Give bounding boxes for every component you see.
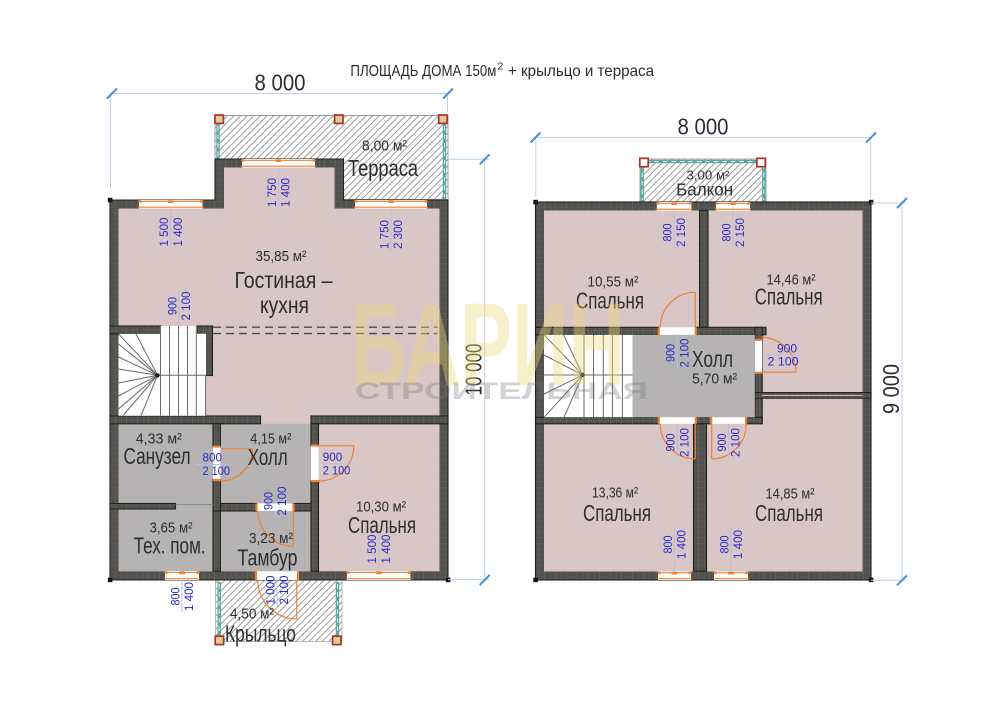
- svg-text:1 500: 1 500: [367, 535, 379, 564]
- svg-text:800: 800: [721, 224, 733, 242]
- svg-text:800: 800: [719, 536, 731, 554]
- svg-text:Балкон: Балкон: [676, 180, 733, 200]
- svg-text:900: 900: [167, 297, 179, 315]
- svg-text:8,00 м²: 8,00 м²: [362, 138, 407, 155]
- svg-text:800: 800: [663, 536, 675, 554]
- svg-text:кухня: кухня: [260, 292, 309, 318]
- svg-text:Спальня: Спальня: [348, 512, 416, 538]
- svg-text:900: 900: [717, 434, 729, 452]
- svg-text:2 100: 2 100: [279, 576, 291, 605]
- svg-text:+ крыльцо и терраса: + крыльцо и терраса: [508, 63, 654, 80]
- svg-text:2 100: 2 100: [277, 487, 289, 516]
- svg-text:Санузел: Санузел: [124, 443, 191, 469]
- svg-text:9 000: 9 000: [878, 364, 904, 414]
- svg-text:2 100: 2 100: [679, 428, 691, 457]
- svg-text:1 750: 1 750: [267, 178, 279, 207]
- svg-text:Спальня: Спальня: [583, 500, 651, 526]
- svg-text:2 100: 2 100: [768, 357, 799, 369]
- svg-text:1 400: 1 400: [381, 535, 393, 564]
- svg-text:1 400: 1 400: [677, 530, 689, 559]
- svg-text:5,70 м²: 5,70 м²: [692, 371, 737, 388]
- svg-text:1 750: 1 750: [379, 220, 391, 249]
- svg-text:Холл: Холл: [248, 444, 288, 470]
- svg-text:1 500: 1 500: [159, 218, 171, 247]
- svg-text:1 000: 1 000: [265, 576, 277, 605]
- svg-text:Терраса: Терраса: [348, 155, 418, 181]
- svg-text:Холл: Холл: [692, 346, 733, 372]
- svg-text:2: 2: [498, 61, 504, 73]
- svg-text:1 400: 1 400: [281, 178, 293, 207]
- svg-text:2 100: 2 100: [323, 463, 351, 477]
- svg-text:35,85 м²: 35,85 м²: [256, 248, 307, 265]
- svg-text:8 000: 8 000: [678, 114, 729, 140]
- svg-text:800: 800: [203, 451, 223, 465]
- svg-text:900: 900: [666, 344, 678, 362]
- svg-text:Спальня: Спальня: [755, 500, 823, 526]
- svg-text:1 400: 1 400: [184, 582, 196, 611]
- svg-text:900: 900: [666, 434, 678, 452]
- svg-text:8 000: 8 000: [255, 70, 306, 96]
- svg-text:Крыльцо: Крыльцо: [225, 621, 296, 647]
- svg-text:900: 900: [323, 450, 343, 464]
- svg-text:2 150: 2 150: [735, 218, 747, 247]
- svg-text:900: 900: [777, 344, 797, 356]
- svg-text:1 400: 1 400: [733, 530, 745, 559]
- svg-text:2 100: 2 100: [679, 339, 691, 368]
- svg-text:Спальня: Спальня: [755, 284, 823, 310]
- svg-text:800: 800: [662, 224, 674, 242]
- svg-text:1 400: 1 400: [173, 218, 185, 247]
- svg-text:Гостиная –: Гостиная –: [235, 267, 333, 293]
- svg-text:2 300: 2 300: [393, 220, 405, 249]
- svg-text:СТРОИТЕЛЬНАЯ: СТРОИТЕЛЬНАЯ: [355, 378, 648, 405]
- svg-text:2 100: 2 100: [181, 292, 193, 321]
- svg-text:2 150: 2 150: [676, 218, 688, 247]
- svg-text:2 100: 2 100: [731, 428, 743, 457]
- svg-text:2 100: 2 100: [203, 464, 231, 478]
- svg-text:13,36 м²: 13,36 м²: [592, 485, 638, 502]
- svg-text:900: 900: [263, 492, 275, 510]
- svg-text:Тамбур: Тамбур: [238, 545, 298, 571]
- svg-text:Тех. пом.: Тех. пом.: [134, 533, 206, 559]
- svg-text:800: 800: [170, 588, 182, 606]
- svg-text:ПЛОЩАДЬ ДОМА 150м: ПЛОЩАДЬ ДОМА 150м: [350, 63, 496, 80]
